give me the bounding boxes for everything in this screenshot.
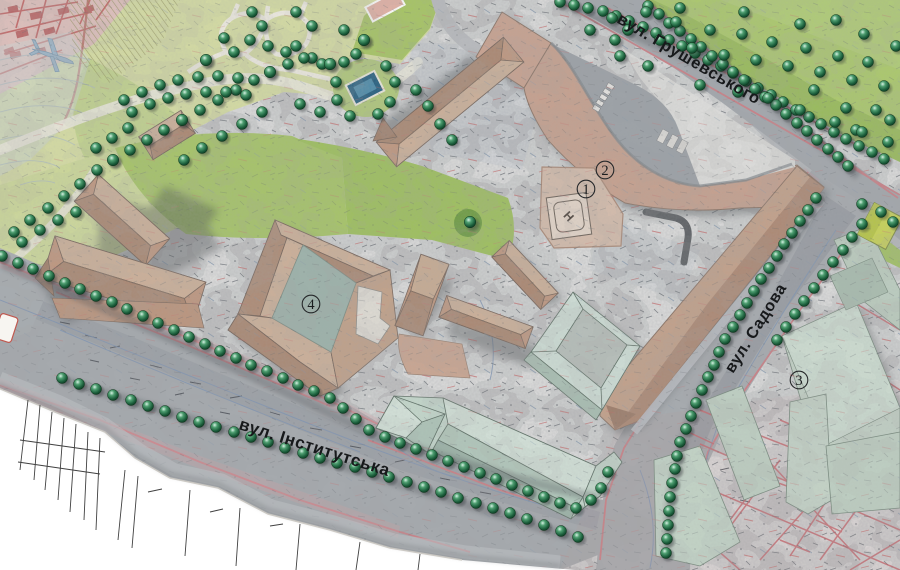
svg-text:1: 1 [582,182,589,198]
svg-text:3: 3 [795,373,802,389]
svg-text:4: 4 [307,297,315,313]
svg-text:2: 2 [601,163,608,179]
